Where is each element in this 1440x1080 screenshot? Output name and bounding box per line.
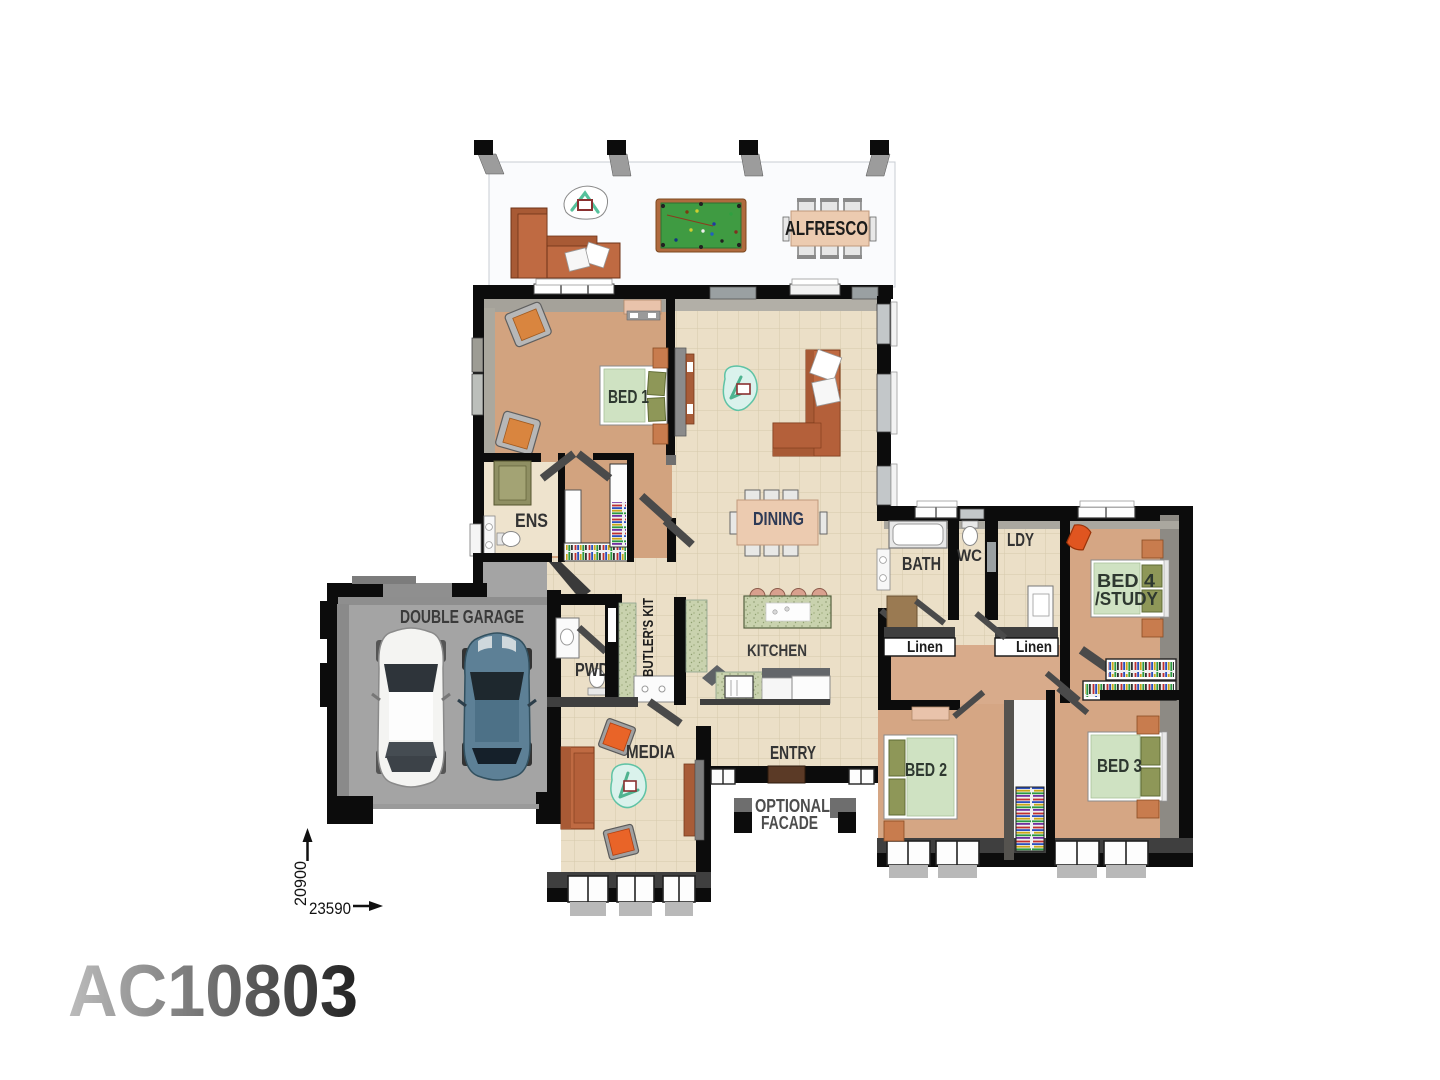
svg-text:ENTRY: ENTRY bbox=[770, 743, 816, 763]
svg-text:/STUDY: /STUDY bbox=[1095, 589, 1158, 609]
svg-text:BED 3: BED 3 bbox=[1097, 756, 1142, 776]
svg-text:ALFRESCO: ALFRESCO bbox=[785, 218, 868, 240]
svg-text:ENS: ENS bbox=[515, 511, 548, 532]
svg-text:DOUBLE GARAGE: DOUBLE GARAGE bbox=[400, 607, 524, 627]
svg-text:WC: WC bbox=[957, 546, 982, 565]
svg-text:DINING: DINING bbox=[753, 509, 804, 529]
svg-text:LDY: LDY bbox=[1007, 530, 1034, 550]
svg-text:BED 2: BED 2 bbox=[905, 760, 947, 780]
svg-text:KITCHEN: KITCHEN bbox=[747, 641, 807, 660]
svg-text:BED 4: BED 4 bbox=[1097, 571, 1155, 591]
svg-text:Linen: Linen bbox=[907, 639, 943, 656]
svg-text:AC10803: AC10803 bbox=[68, 951, 358, 1032]
svg-text:23590: 23590 bbox=[309, 899, 351, 918]
svg-text:PWD: PWD bbox=[575, 660, 609, 680]
svg-text:Linen: Linen bbox=[1016, 639, 1052, 656]
svg-text:20900: 20900 bbox=[291, 861, 310, 906]
svg-text:FACADE: FACADE bbox=[761, 813, 818, 833]
svg-text:BED 1: BED 1 bbox=[608, 387, 649, 407]
svg-text:BUTLER'S KIT: BUTLER'S KIT bbox=[640, 598, 657, 677]
svg-text:MEDIA: MEDIA bbox=[626, 742, 675, 762]
svg-text:BATH: BATH bbox=[902, 554, 941, 574]
